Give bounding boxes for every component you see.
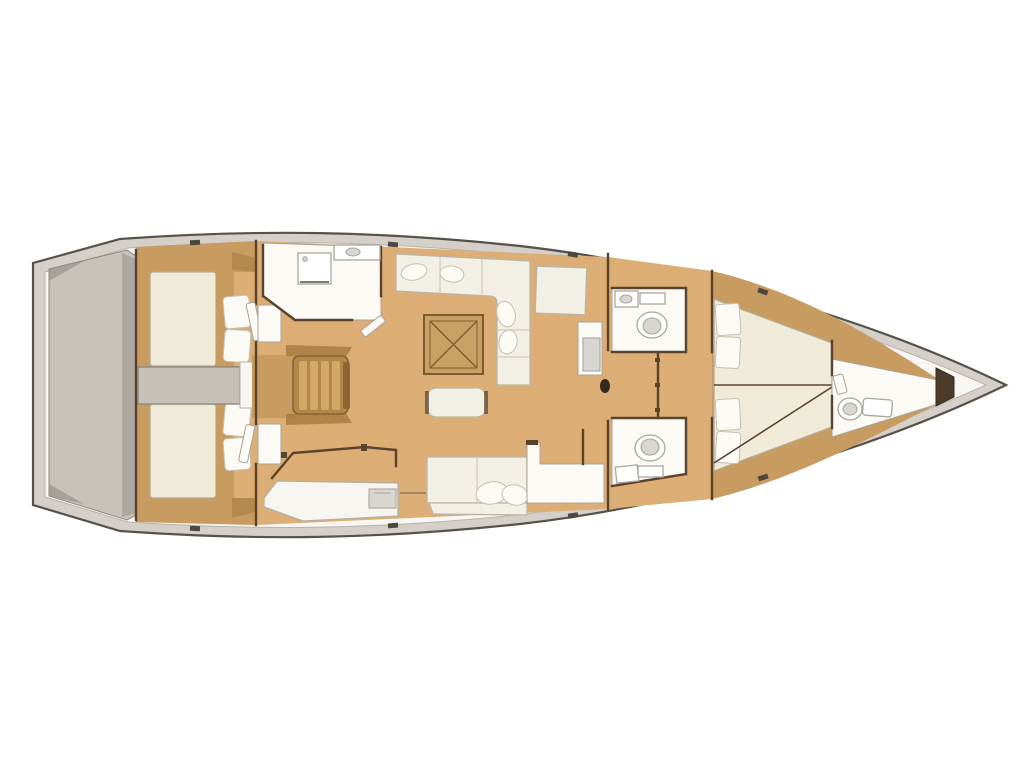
step [321,361,329,410]
pillow [715,398,741,430]
engine-compartment [138,367,240,404]
cleat [388,242,398,248]
galley-knob [281,452,287,458]
counter-end [526,440,538,445]
companionway-landing [240,362,254,408]
cleat [190,526,200,532]
pillow [223,295,252,329]
bench-end [484,391,488,414]
cleat [190,240,200,246]
berth-port [150,272,216,366]
nav-locker [583,338,600,371]
sink-unit [615,465,639,483]
toilet-seat [643,318,661,334]
stair-top-cap [343,362,350,409]
bench-cushion [427,388,486,417]
pillow [715,336,741,368]
platform-shade-band [122,253,136,517]
hinge [655,408,660,412]
step [332,361,340,410]
mid-head-port [612,288,686,352]
sink-basin [346,248,360,256]
hinge [655,383,660,387]
toilet-tank [640,293,665,304]
toilet-tank [638,466,663,477]
yacht-floor-plan [0,0,1024,768]
cleat [388,523,398,529]
floor-plan-canvas [0,0,1024,768]
stair-housing [252,355,296,418]
shower-drain [303,257,308,262]
hinge [655,358,660,362]
berth-starboard [150,404,216,498]
salon-bench [425,388,488,417]
toilet-seat [641,439,659,455]
pillow [715,303,741,336]
pillow [223,329,251,363]
mast-foot [600,379,610,393]
chart-table [535,266,587,315]
step [299,361,307,410]
swim-platform [49,250,136,520]
mid-head-starboard [612,418,686,486]
galley-knob [361,444,367,451]
seat-port [258,305,281,342]
sink-unit [862,398,892,417]
toilet-seat [843,403,857,415]
sink-basin [620,295,632,303]
galley-sink [369,489,396,508]
corridor-door [655,352,660,418]
companionway-stairs [252,345,352,425]
salon-table [424,315,483,374]
seat-starboard [258,424,281,464]
step [310,361,318,410]
bench-end [425,391,429,414]
